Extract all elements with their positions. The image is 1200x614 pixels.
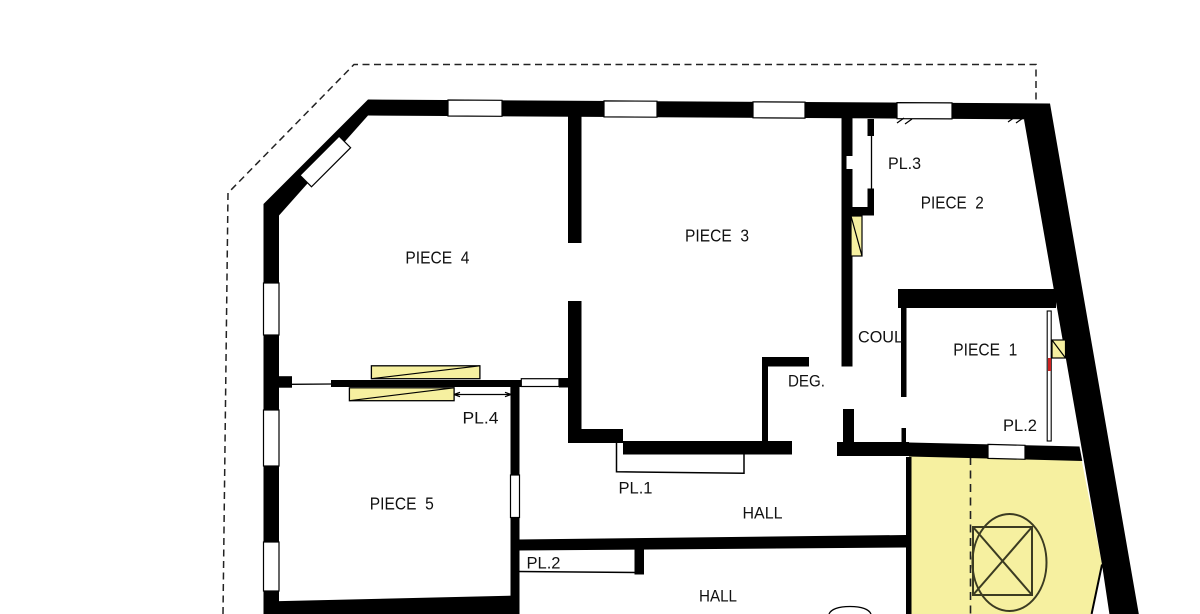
svg-text:DEG.: DEG. (788, 372, 825, 391)
svg-text:PIECE 3: PIECE 3 (685, 226, 749, 246)
svg-text:PIECE 4: PIECE 4 (405, 248, 469, 268)
svg-text:PL.1: PL.1 (619, 479, 653, 498)
svg-text:PIECE 5: PIECE 5 (370, 494, 434, 514)
svg-text:PL.2: PL.2 (1003, 416, 1037, 435)
svg-text:HALL: HALL (743, 504, 783, 523)
svg-text:HALL: HALL (699, 587, 737, 606)
svg-text:PL.2: PL.2 (527, 554, 561, 573)
svg-text:PIECE 1: PIECE 1 (953, 340, 1017, 360)
svg-text:PL.4: PL.4 (463, 409, 499, 428)
svg-text:PL.3: PL.3 (888, 154, 921, 173)
svg-text:PIECE 2: PIECE 2 (921, 193, 984, 213)
svg-text:COUL: COUL (858, 328, 903, 347)
